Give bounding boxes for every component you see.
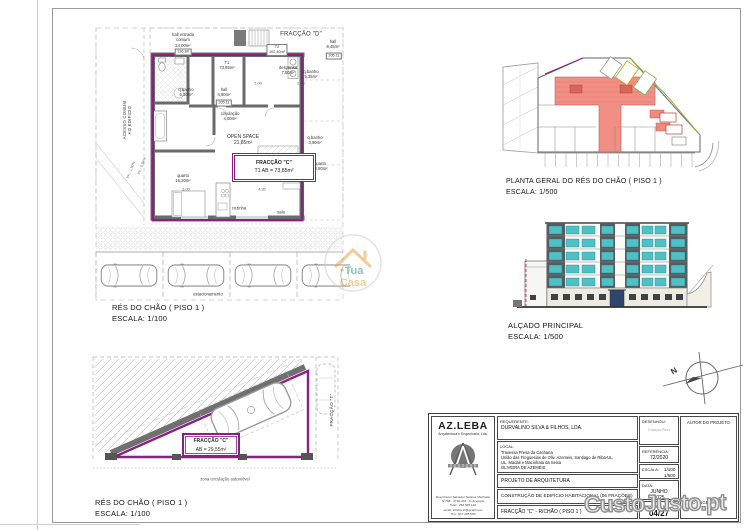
label-t1-tag: T1 73,85m² (219, 60, 234, 71)
sheet-edge-line (37, 0, 38, 530)
fraccao-c-tag-box: FRACÇÃO "C" T1 AB = 73,85m² (232, 153, 316, 182)
requerente-value: DURVALINO SILVA & FILHOS, LDA. (498, 424, 637, 433)
label-cota-entrada: 136.80 (175, 49, 192, 56)
escala-value: 1/100 1/500 (661, 465, 679, 478)
escala-cell: ESCALA: 1/100 1/500 (639, 464, 679, 479)
dimension-4: 4.30 (258, 188, 265, 193)
elevation-drawing (505, 215, 715, 320)
label-fraccao-d: FRACÇÃO "D" (280, 31, 322, 39)
dimension-1: 2.00 (254, 82, 261, 87)
garage-fraccao-t-label: FRACÇÃO "T" (329, 393, 335, 426)
referencia-value: 72/2020 (640, 454, 678, 463)
desenhou-cell: DESENHOU: Cristina Pires (639, 416, 679, 445)
label-despensa: despensa 7,80m² (279, 65, 297, 76)
desenhou-value: Cristina Pires (640, 427, 678, 434)
label-quarto-c: quarto 16,20m² (175, 173, 190, 184)
label-t2-tag: T2 102,40m² (266, 44, 287, 56)
escala-label: ESCALA: (640, 465, 661, 478)
compass-logo-icon (445, 439, 481, 479)
tua-casa-watermark: Tua Casa (322, 232, 384, 294)
label-circulacao: circulação 4,00m² (221, 111, 240, 122)
label-acesso-comum: ACESSO COMUM AO EDIFÍCIO (122, 101, 133, 140)
custojusto-watermark: CustoJusto.pt (584, 489, 726, 518)
autor-label: AUTOR DO PROJETO (681, 420, 736, 425)
floorplan-caption-scale: ESCALA: 1/100 (112, 314, 167, 323)
general-plan-drawing (500, 55, 720, 175)
garage-zona-label: zona circulação automóvel (200, 476, 250, 481)
label-cota-hall-c: 205.11 (216, 100, 232, 107)
projeto-value: PROJETO DE ARQUITETURA (498, 477, 573, 486)
label-estacionamento: estacionamento (193, 291, 223, 296)
label-hall-d: hall 6,45m² (326, 39, 339, 50)
label-cozinha: cozinha (232, 205, 246, 210)
garage-caption-scale: ESCALA: 1/100 (95, 509, 150, 518)
general-plan-caption-scale: ESCALA: 1/500 (506, 189, 558, 196)
garage-caption-title: RÉS DO CHÃO ( PISO 1 ) (95, 498, 187, 507)
fraccao-c-tag-title: FRACÇÃO "C" (256, 160, 292, 168)
company-address: Rua Doutor Salvador Tavares Machado Nº78… (432, 495, 494, 516)
garage-plan-drawing (88, 350, 350, 485)
elevation-caption-title: ALÇADO PRINCIPAL (508, 321, 583, 330)
label-sala: sala (277, 209, 285, 214)
tua-watermark-text: Tua (345, 265, 365, 277)
label-qbanho-d: q.banho 5,35m² (303, 69, 318, 80)
general-plan-caption-title: PLANTA GERAL DO RÉS DO CHÃO ( PISO 1 ) (506, 178, 662, 185)
dimension-3: 3.00 (182, 188, 189, 193)
label-open-space: OPEN SPACE 21,85m² (227, 134, 259, 147)
casa-watermark-text: Casa (340, 277, 367, 289)
desenhou-label: DESENHOU: (640, 417, 678, 424)
projeto-cell: PROJETO DE ARQUITETURA (497, 474, 638, 488)
requerente-cell: REQUERENTE: DURVALINO SILVA & FILHOS, LD… (497, 416, 638, 440)
fraccao-c-tag-area: T1 AB = 73,85m² (254, 168, 293, 176)
local-cell: LOCAL: Travessa Presa da Cachana União d… (497, 441, 638, 473)
label-hall-entrada: hall entrada comum 24,00m² (172, 32, 194, 48)
label-hall-c: hall 4,90m² (217, 87, 230, 98)
drawing-sheet: hall entrada comum 24,00m² 136.80 FRACÇÃ… (0, 0, 750, 530)
fraccao-value: FRACÇÃO "C" - R/CHÃO ( PISO 1 ) (498, 508, 585, 517)
sheet-bottom-line (0, 524, 140, 525)
title-block-logo-cell: AZ.LEBA Arquitectura e Engenharia, Lda. … (431, 416, 495, 519)
garage-fraccao-c-title: FRACÇÃO "C" (194, 438, 229, 444)
local-value: Travessa Presa da Cachana União das Freg… (498, 449, 637, 472)
referencia-cell: REFERÊNCIA: 72/2020 (639, 446, 679, 463)
north-arrow-icon (655, 352, 745, 412)
elevation-caption-scale: ESCALA: 1/500 (508, 332, 563, 341)
label-qbanho-d2: q.banho 3,90m² (307, 135, 322, 146)
company-subtitle: Arquitectura e Engenharia, Lda. (432, 432, 494, 436)
garage-fraccao-c-area: AB = 29,55m² (196, 447, 227, 453)
label-qbanho-c: q.banho 6,30m² (178, 87, 193, 98)
label-cota-hall-d: 205.11 (326, 53, 342, 60)
dimension-2: 2.15 (297, 82, 304, 87)
floorplan-caption-title: RÉS DO CHÃO ( PISO 1 ) (112, 303, 204, 312)
company-name: AZ.LEBA (432, 420, 494, 432)
